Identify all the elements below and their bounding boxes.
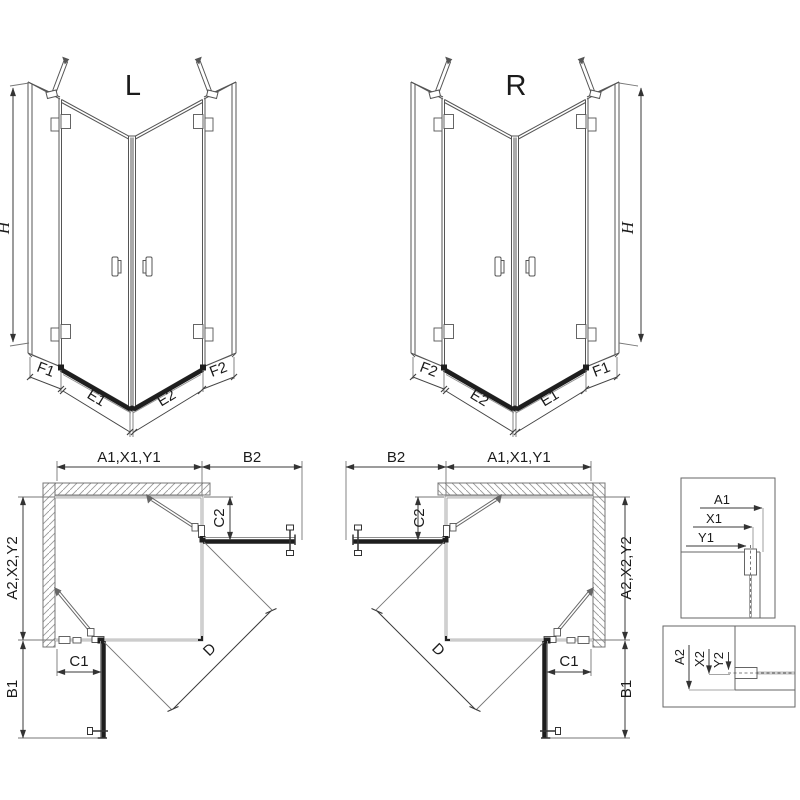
iso-view-right: R H F2 E2 E1 F1 (410, 58, 641, 438)
height-dim-label: H (618, 220, 637, 235)
shower-enclosure-diagram: L H F1 E1 E2 F2 R H F2 E2 E1 F1 A1,X1,Y1… (0, 0, 800, 800)
diagonal-dim-label: D (428, 640, 448, 660)
return-side-dim-label: C1 (69, 653, 88, 670)
detail-wall-profile-top: A1 X1 Y1 (681, 478, 775, 618)
iso-view-left: L H F1 E1 E2 F2 (0, 58, 237, 438)
detail-a2-label: A2 (672, 649, 687, 665)
door-side-dim-label: B1 (618, 680, 635, 698)
technical-drawing-page: L H F1 E1 E2 F2 R H F2 E2 E1 F1 A1,X1,Y1… (0, 0, 800, 800)
return-top-dim-label: C2 (211, 508, 228, 527)
detail-y2-label: Y2 (711, 652, 726, 668)
detail-wall-profile-bottom: A2 X2 Y2 (663, 626, 795, 707)
f1-dim-label: F1 (590, 359, 612, 381)
detail-x1-label: X1 (706, 511, 722, 526)
depth-dim-label: A2,X2,Y2 (618, 536, 635, 599)
return-side-dim-label: C1 (559, 653, 578, 670)
door-out-dim-label: B2 (243, 449, 261, 466)
height-dim-label: H (0, 220, 13, 235)
detail-y1-label: Y1 (698, 530, 714, 545)
return-top-dim-label: C2 (411, 508, 428, 527)
door-out-dim-label: B2 (387, 449, 405, 466)
f2-dim-label: F2 (417, 359, 439, 381)
plan-view-right: A1,X1,Y1 B2 C2 A2,X2,Y2 B1 C1 D (346, 449, 635, 738)
f1-dim-label: F1 (34, 359, 56, 381)
view-left-label: L (125, 70, 141, 102)
width-dim-label: A1,X1,Y1 (97, 449, 160, 466)
width-dim-label: A1,X1,Y1 (487, 449, 550, 466)
diagonal-dim-label: D (200, 640, 220, 660)
f2-dim-label: F2 (207, 359, 229, 381)
plan-view-left: A1,X1,Y1 B2 C2 A2,X2,Y2 B1 C1 D (4, 449, 302, 738)
view-right-label: R (506, 70, 527, 102)
depth-dim-label: A2,X2,Y2 (4, 536, 21, 599)
detail-a1-label: A1 (714, 492, 730, 507)
door-side-dim-label: B1 (4, 680, 21, 698)
detail-x2-label: X2 (692, 651, 707, 667)
